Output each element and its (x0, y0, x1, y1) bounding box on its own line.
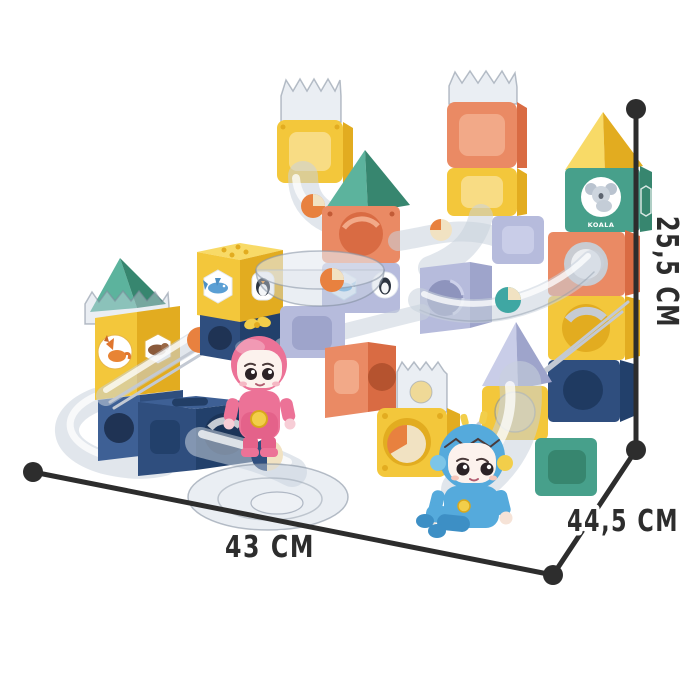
dimension-endpoint (626, 440, 646, 460)
fox-icon (98, 335, 132, 369)
dimension-endpoint (23, 462, 43, 482)
crown-top (281, 79, 341, 122)
koala-label: KOALA (588, 221, 615, 229)
crown-top (449, 71, 517, 104)
product-photo: KOALA (0, 0, 700, 700)
orange-open-cube (325, 342, 396, 418)
height-dimension-label: 25,5 CM (649, 216, 684, 328)
toy-scene: KOALA (67, 71, 652, 538)
marble-run-toy-illustration: KOALA (0, 0, 700, 700)
chest-button (251, 411, 267, 427)
width-dimension-label: 43 CM (225, 530, 315, 565)
dimension-endpoint (626, 99, 646, 119)
chest-button (458, 500, 470, 512)
dimension-endpoint (543, 565, 563, 585)
ear-pod (497, 455, 513, 471)
depth-dimension-label: 44,5 CM (567, 504, 679, 539)
pyramid-roof (565, 112, 605, 174)
